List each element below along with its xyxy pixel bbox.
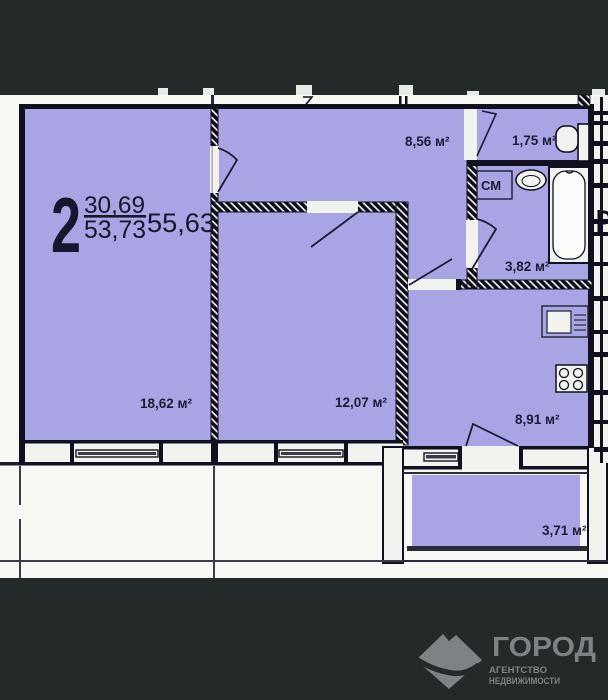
svg-text:8,91 м²: 8,91 м²: [515, 412, 560, 427]
svg-text:8,56 м²: 8,56 м²: [405, 134, 450, 149]
svg-text:ГОРОД: ГОРОД: [492, 631, 596, 662]
svg-text:СМ: СМ: [481, 178, 501, 193]
svg-text:НЕДВИЖИМОСТИ: НЕДВИЖИМОСТИ: [489, 676, 560, 687]
svg-text:2: 2: [51, 181, 81, 269]
svg-text:3,82 м²: 3,82 м²: [505, 259, 550, 274]
svg-text:3,71 м²: 3,71 м²: [542, 523, 587, 538]
svg-text:1,75 м²: 1,75 м²: [512, 133, 557, 148]
svg-text:30,69: 30,69: [84, 192, 145, 219]
svg-text:АГЕНТСТВО: АГЕНТСТВО: [489, 665, 547, 676]
svg-text:12,07 м²: 12,07 м²: [335, 395, 388, 410]
svg-text:53,73: 53,73: [84, 216, 146, 244]
svg-text:18,62 м²: 18,62 м²: [140, 396, 193, 411]
svg-text:55,63: 55,63: [147, 208, 215, 238]
